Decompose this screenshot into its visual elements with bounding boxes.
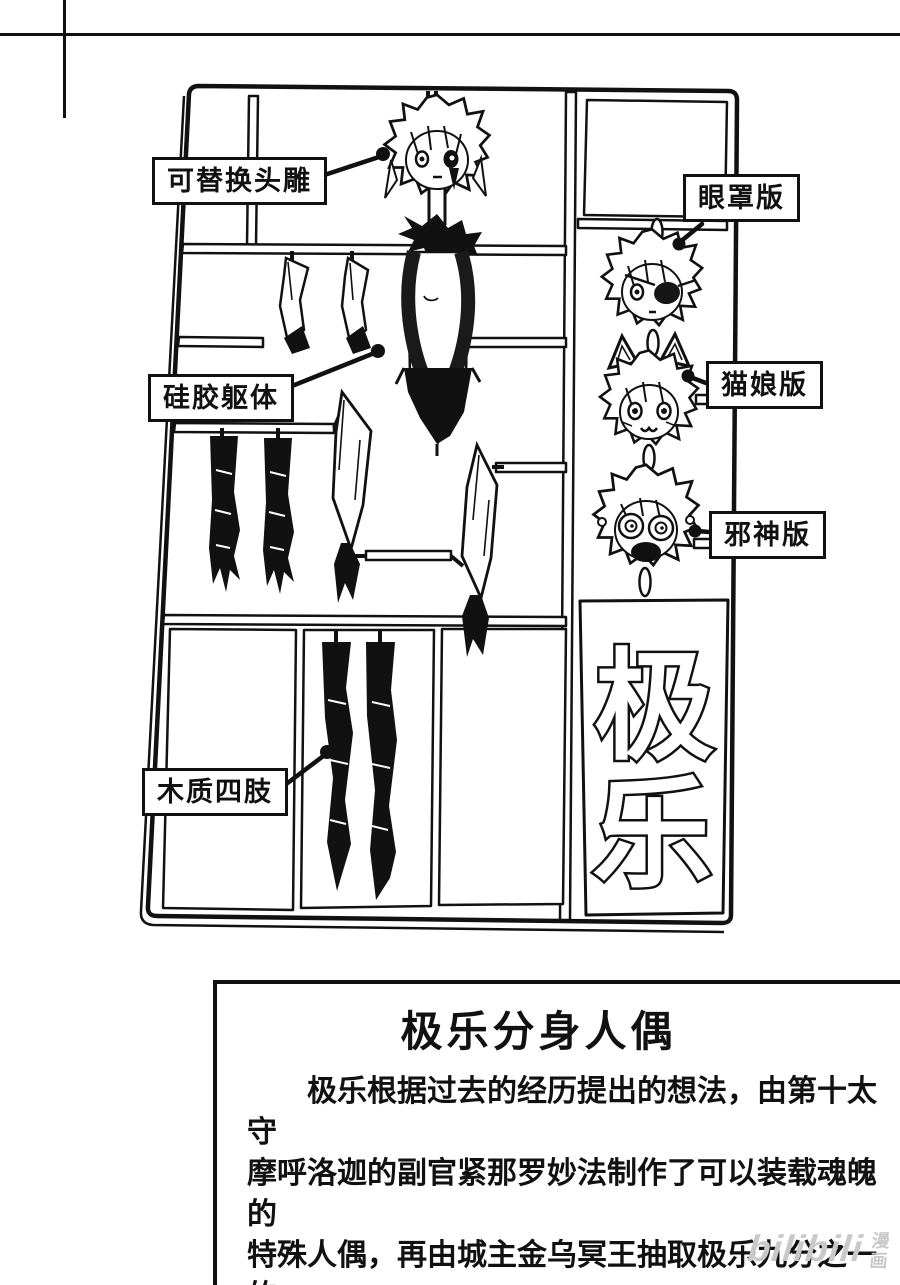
plate-char-1: 极 <box>594 640 714 774</box>
plate-char-2: 乐 <box>592 768 712 902</box>
part-forearm-2 <box>263 438 294 594</box>
watermark-brand: bilibili <box>746 1228 865 1270</box>
description-title: 极乐分身人偶 <box>247 998 890 1059</box>
label-silicone-torso: 硅胶躯体 <box>148 374 294 422</box>
label-wooden-limbs: 木质四肢 <box>142 768 288 816</box>
watermark-suffix: 漫画 <box>869 1231 895 1271</box>
manga-page: 极 乐 可替换头雕 硅胶躯体 木质四肢 眼罩版 猫娘版 邪神版 极乐分身人偶 <box>0 0 900 1285</box>
part-forearm-1 <box>209 436 240 592</box>
description-line: 摩呼洛迦的副官紧那罗妙法制作了可以装载魂魄的 <box>247 1153 890 1235</box>
label-evil-god-version: 邪神版 <box>709 511 826 559</box>
bilibili-watermark: bilibili 漫画 <box>746 1228 895 1271</box>
label-replaceable-head: 可替换头雕 <box>152 157 327 205</box>
plate-brand-text: 极 乐 <box>592 640 714 902</box>
label-eyepatch-version: 眼罩版 <box>683 174 800 222</box>
label-catgirl-version: 猫娘版 <box>706 361 823 409</box>
description-line: 极乐根据过去的经历提出的想法，由第十太守 <box>247 1071 890 1153</box>
